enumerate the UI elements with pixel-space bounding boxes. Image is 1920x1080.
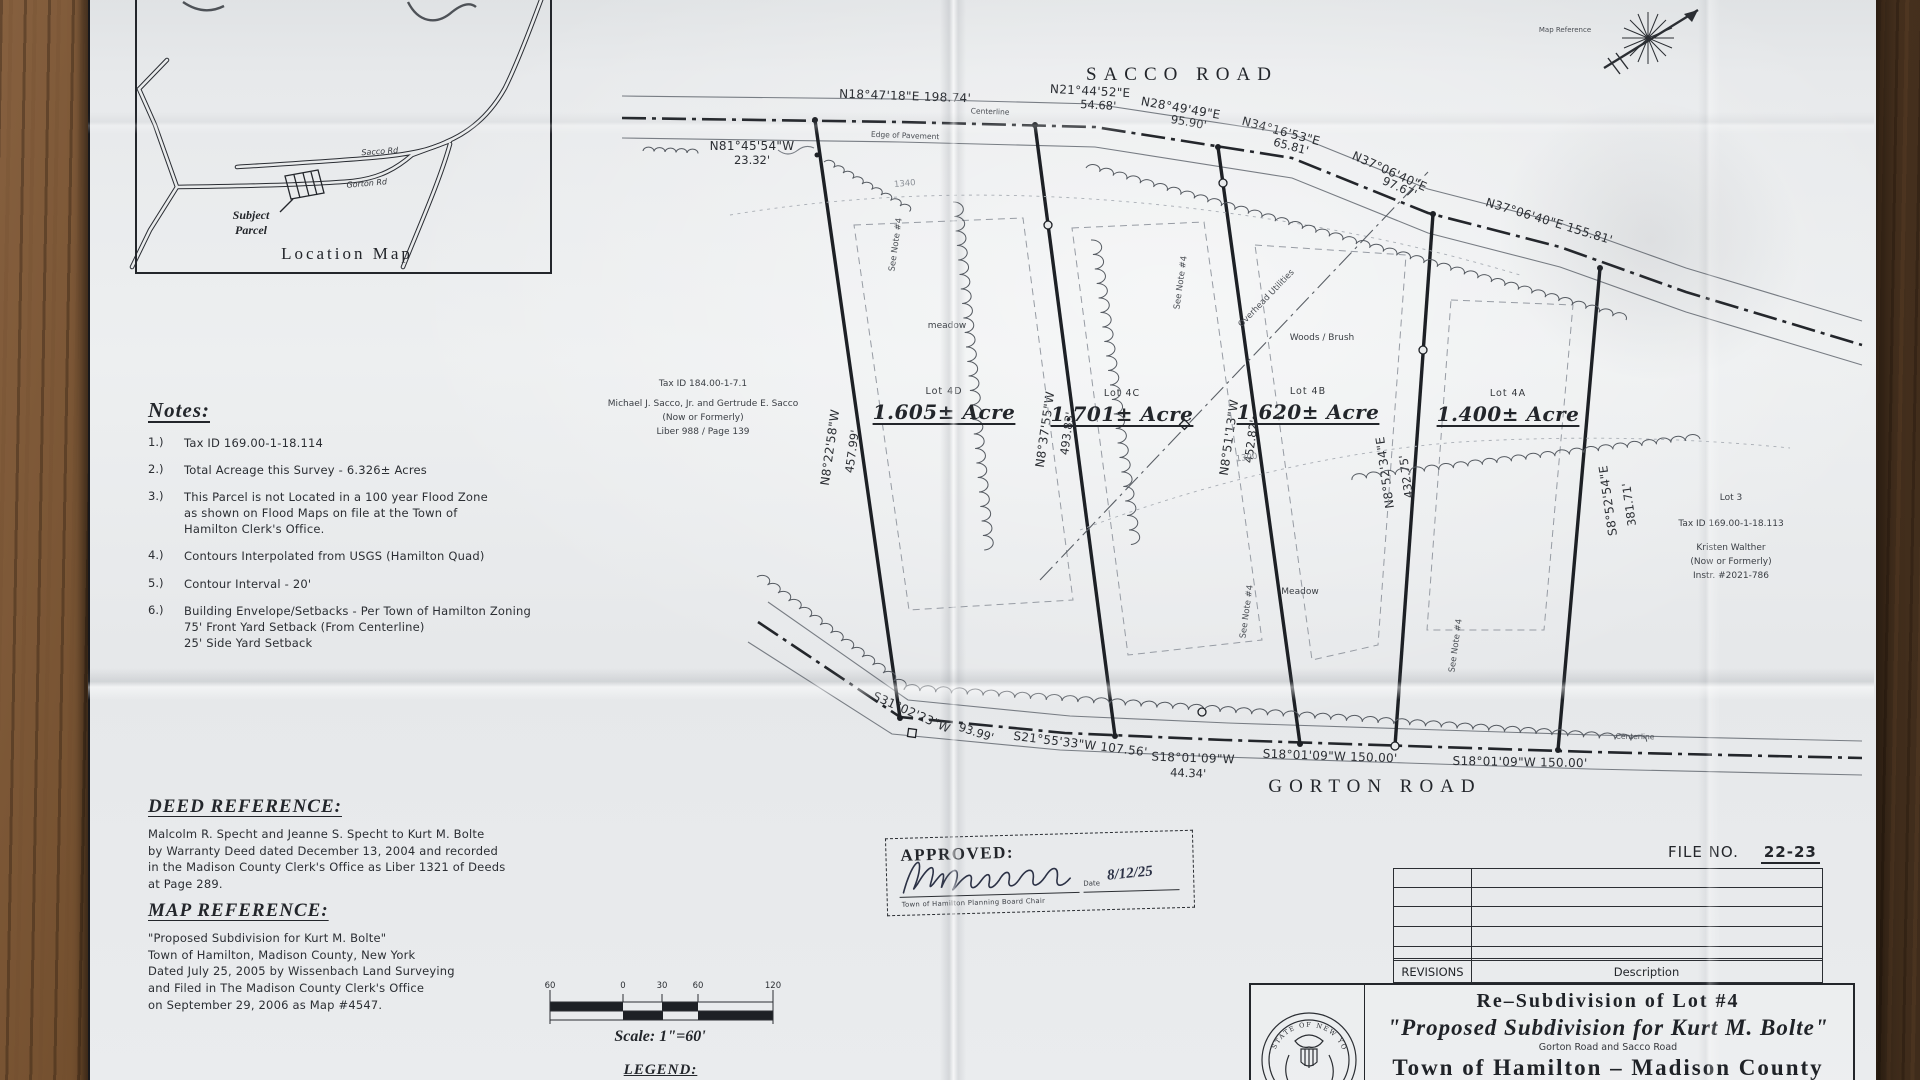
deed-reference-heading: DEED REFERENCE: [148, 796, 608, 818]
notes-section: Notes: 1.)Tax ID 169.00-1-18.114 2.)Tota… [148, 398, 628, 662]
gorton-road-name: GORTON ROAD [1260, 776, 1490, 798]
bearing-label: S18°01'09"W 150.00' [1262, 747, 1397, 766]
location-map-title: Location Map [272, 244, 422, 264]
scale-caption: Scale: 1"=60' [550, 1028, 770, 1046]
lot-id: Lot 4D [864, 386, 1024, 397]
now-or-formerly: (Now or Formerly) [1652, 556, 1810, 570]
title-line-3: Gorton Road and Sacco Road [1364, 1042, 1852, 1053]
lot-area: 1.605± Acre [864, 400, 1024, 424]
seal-emblem [1286, 1035, 1334, 1080]
bearing-label: N37°06'40"E 155.81' [1484, 195, 1614, 247]
bearing-label: N18°47'18"E 198.74' [839, 87, 971, 106]
sacco-road-bearings: N18°47'18"E 198.74' N21°44'52"E 54.68' N… [710, 82, 1615, 247]
tax-id: Tax ID 169.00-1-18.113 [1652, 518, 1810, 532]
location-map-frame [135, 0, 552, 274]
edge-of-pavement-label: Edge of Pavement [871, 130, 940, 141]
tax-id: Tax ID 184.00-1-7.1 [597, 378, 809, 392]
scale-tick: 60 [693, 981, 704, 991]
deed-reference-body: Malcolm R. Specht and Jeanne S. Specht t… [148, 826, 608, 893]
revision-row [1394, 947, 1822, 959]
centerline-label: Centerline [1616, 732, 1655, 742]
survey-markers [812, 117, 1603, 753]
surveyor-seal: STATE OF NEW YORK [1251, 985, 1364, 1080]
adjoiner-north-block: Tax ID 184.00-1-7.1 Michael J. Sacco, Jr… [597, 378, 809, 440]
lot-area: 1.400± Acre [1428, 402, 1588, 426]
title-line-4: Town of Hamilton – Madison County [1364, 1055, 1852, 1080]
distance-label: 44.34' [1170, 765, 1207, 780]
approval-stamp-box: APPROVED: Date 8/12/25 Town of Hamilton … [885, 830, 1195, 917]
overhead-utilities-label: Overhead Utilities [1236, 267, 1297, 329]
revisions-table: REVISIONS Description [1393, 868, 1823, 983]
lot-4b-label: Lot 4B 1.620± Acre [1228, 386, 1388, 424]
photo-of-survey-plat: Sacco Rd Gorton Rd N18°47'18"E 1 [0, 0, 1920, 1080]
see-note-label: See Note #4 [887, 217, 904, 272]
note-item: 6.)Building Envelope/Setbacks - Per Town… [148, 603, 628, 651]
lot-id: Lot 4C [1042, 388, 1202, 399]
revision-row [1394, 907, 1822, 927]
adjoiner-east-block: Lot 3 Tax ID 169.00-1-18.113 Kristen Wal… [1652, 492, 1810, 584]
centerline-label: Centerline [971, 106, 1010, 116]
revision-row [1394, 927, 1822, 947]
lot-line-distance: 381.71' [1619, 482, 1639, 527]
bearing-label: S18°01'09"W [1151, 750, 1235, 767]
lot-line-distance: 432.75' [1396, 454, 1416, 499]
description-column-header: Description [1471, 965, 1822, 979]
file-number-value: 22-23 [1761, 843, 1820, 864]
lot-4d-label: Lot 4D 1.605± Acre [864, 386, 1024, 424]
lot-line-distance: 457.99' [842, 429, 862, 474]
lot-id: Lot 4A [1428, 388, 1588, 399]
see-note-label: See Note #4 [1238, 584, 1255, 639]
contour-line [730, 195, 1520, 275]
note-item: 5.)Contour Interval - 20' [148, 576, 628, 592]
note-item: 2.)Total Acreage this Survey - 6.326± Ac… [148, 462, 628, 478]
title-block: STATE OF NEW YORK Re–Subdivision of Lot … [1249, 983, 1855, 1080]
lot-area: 1.701± Acre [1042, 402, 1202, 426]
lot-4c-label: Lot 4C 1.701± Acre [1042, 388, 1202, 426]
revision-row [1394, 888, 1822, 907]
revisions-header: REVISIONS Description [1394, 960, 1822, 982]
now-or-formerly: (Now or Formerly) [597, 412, 809, 426]
notes-heading: Notes: [148, 398, 628, 423]
meadow-label: meadow [928, 321, 966, 331]
revision-row [1394, 869, 1822, 888]
title-block-text: Re–Subdivision of Lot #4 "Proposed Subdi… [1364, 985, 1852, 1080]
owner-name: Kristen Walther [1652, 542, 1810, 556]
meadow-label: Meadow [1281, 587, 1318, 597]
sacco-road-name: SACCO ROAD [1067, 64, 1297, 86]
overhead-utilities-line [1040, 172, 1428, 580]
north-arrow-icon [1604, 10, 1698, 74]
map-reference-section: MAP REFERENCE: "Proposed Subdivision for… [148, 900, 608, 1013]
revisions-column-header: REVISIONS [1394, 965, 1471, 979]
map-reference-caption: Map Reference [1528, 26, 1602, 35]
note-item: 1.)Tax ID 169.00-1-18.114 [148, 435, 628, 451]
owner-name: Michael J. Sacco, Jr. and Gertrude E. Sa… [597, 398, 809, 412]
deed-liber: Liber 988 / Page 139 [597, 426, 809, 440]
distance-label: 54.68' [1080, 97, 1117, 113]
lot-line-bearing: N8°22'58"W [818, 408, 843, 486]
scale-tick: 30 [657, 981, 668, 991]
map-reference-heading: MAP REFERENCE: [148, 900, 608, 922]
deed-reference-section: DEED REFERENCE: Malcolm R. Specht and Je… [148, 796, 608, 893]
scale-tick: 0 [620, 981, 625, 991]
legend-heading: LEGEND: [568, 1062, 753, 1079]
note-item: 4.)Contours Interpolated from USGS (Hami… [148, 548, 628, 564]
building-envelopes [854, 218, 1573, 660]
woods-brush-label: Woods / Brush [1290, 333, 1355, 343]
contour-elevation-label: 1340 [894, 178, 916, 190]
pavement-edge-squiggle [643, 147, 698, 153]
scale-tick: 120 [765, 981, 781, 991]
date-label: Date [1083, 879, 1100, 887]
subject-parcel-label: Subject Parcel [218, 208, 284, 238]
map-reference-body: "Proposed Subdivision for Kurt M. Bolte"… [148, 930, 608, 1013]
lot-id: Lot 4B [1228, 386, 1388, 397]
bearing-label: N81°45'54"W [710, 139, 795, 153]
lot-number: Lot 3 [1652, 492, 1810, 506]
bearing-label: S18°01'09"W 150.00' [1452, 754, 1587, 770]
lot-line-bearing: S8°52'54"E [1596, 464, 1620, 536]
title-line-2: "Proposed Subdivision for Kurt M. Bolte" [1364, 1015, 1852, 1041]
file-number-row: FILE NO. 22-23 [1668, 843, 1820, 864]
instrument-number: Instr. #2021-786 [1652, 570, 1810, 584]
scale-tick: 60 [545, 981, 556, 991]
tree-line [953, 202, 993, 550]
file-number-label: FILE NO. [1668, 843, 1739, 861]
title-line-1: Re–Subdivision of Lot #4 [1364, 990, 1852, 1013]
gorton-road-bearings: S31°02'23"W 93.99' S21°55'33"W 107.56' S… [871, 689, 1655, 781]
note-item: 3.)This Parcel is not Located in a 100 y… [148, 489, 628, 537]
lot-area: 1.620± Acre [1228, 400, 1388, 424]
distance-label: 23.32' [734, 153, 770, 167]
see-note-label: See Note #4 [1447, 618, 1464, 673]
lot-4a-label: Lot 4A 1.400± Acre [1428, 388, 1588, 426]
see-note-label: See Note #4 [1172, 255, 1189, 310]
corner-square-marker [907, 728, 916, 737]
